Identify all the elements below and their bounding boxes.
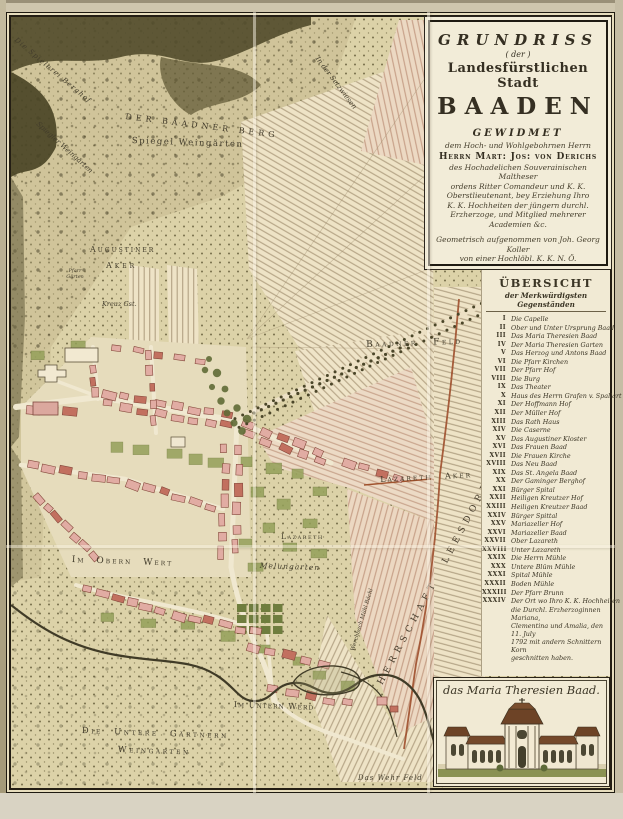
vignette-frame: das Maria Theresien Baad. [436,680,607,784]
legend-entry: XXDer Gaminger Berghof [482,477,610,486]
legend-entry-numeral: XVII [482,452,506,461]
legend-entry-text: Heiligen Kreutzer Baad [511,503,587,512]
legend-entry-numeral: VIII [482,375,506,384]
legend-entry-numeral: VII [482,366,506,375]
legend-entry-text: Die Burg [511,375,540,384]
legend-entry-text: Das Augustiner Kloster [511,435,586,444]
legend-entry: XVIDas Frauen Baad [482,443,610,452]
legend-entry: XXIIIHeiligen Kreutzer Baad [482,503,610,512]
legend-entry-text: Die Herrn Mühle [511,554,566,563]
legend-entry: XXXIIBoden Mühle [482,580,610,589]
vignette-caption: das Maria Theresien Baad. [437,683,606,697]
legend-entry-text: 1792 mit andern Schnittern Korn [511,638,610,654]
legend-subtitle: der Merkwürdigsten Gegenständen [486,291,606,312]
legend-entry: XXXISpital Mühle [482,571,610,580]
legend-entry: XHaus des Herrn Grafen v. Spallart [482,392,610,401]
legend-entry-text: Der Gaminger Berghof [511,477,585,486]
legend-entry-numeral: V [482,349,506,358]
map-label-kreuz-gst: Kreuz Gst. [102,300,137,308]
text-line: Erzherzoge, und Mitglied mehrerer [430,210,606,220]
legend-entry-numeral: XXIII [482,503,506,512]
legend-entry: IIIDas Maria Theresien Baad [482,332,610,341]
maria-theresien-baad-illustration [438,698,606,782]
legend-entry-text: Mariazeller Hof [511,520,562,529]
legend-entry-numeral: XXI [482,486,506,495]
legend-entry-text: Der Ort wo Ihro K. K. Hochheiten [511,597,620,606]
legend-entry: VIDie Pfarr Kirchen [482,358,610,367]
map-title-baaden: BAADEN [430,93,606,120]
legend-entry-numeral: XII [482,409,506,418]
legend-entry-numeral: XVI [482,443,506,452]
legend-entry-text: Der Pfarr Brunn [511,589,564,598]
legend-entry: XXVIMariazeller Baad [482,529,610,538]
legend-entry-numeral: XIII [482,418,506,427]
legend-entry-text: Die Caserne [511,426,551,435]
legend-entry-numeral: XX [482,477,506,486]
legend-entry-numeral: XXVII [482,537,506,546]
legend-entry-numeral: XXVI [482,529,506,538]
mill-building [377,697,387,705]
legend-entry: XIVDie Caserne [482,426,610,435]
legend-entry-numeral: XV [482,435,506,444]
legend-entry-numeral: IX [482,383,506,392]
legend-entry: XXIIHeiligen Kreutzer Hof [482,494,610,503]
legend-entry-numeral: XIX [482,469,506,478]
legend-entry-text: Der Hoffmann Hof [511,400,571,409]
legend-entry-text: Die Capelle [511,315,548,324]
legend-entry-text: Ober und Unter Ursprung Baad [511,324,614,333]
legend-entry-numeral: I [482,315,506,324]
legend-entry-text: Die Pfarr Kirchen [511,358,568,367]
text-line: ordens Ritter Comandeur und K. K. [430,182,606,192]
legend-entry: IIOber und Unter Ursprung Baad [482,324,610,333]
text-line: K. K. Hochheiten der jüngern durchl. [430,201,606,211]
legend-entry: XIDer Hoffmann Hof [482,400,610,409]
map-label-lazareth: Lazareth [281,532,324,541]
legend-entry-text: Bürger Spital [511,486,555,495]
legend-entry: XXIVBürger Spittal [482,512,610,521]
legend-entry-34: XXXIVDer Ort wo Ihro K. K. Hochheitendie… [482,597,610,662]
text-line: Oberstlieutenant, bey Erziehung Ihro [430,191,606,201]
legend-entry-text: Mariazeller Baad [511,529,567,538]
legend-entry-text: Das Rath Haus [511,418,560,427]
legend-entry-numeral: XXIX [482,554,506,563]
legend-entry-text: Heiligen Kreutzer Hof [511,494,583,503]
text-line: von einer Hochlöbl. K. K. N. Ö. Landesre… [430,254,606,266]
map-label-pfarr-garten: Pfarr Gärten [63,268,87,280]
legend-entry-numeral: XXII [482,494,506,503]
legend-entry-text: Das St. Angela Baad [511,469,577,478]
legend-entry-text: Clementina und Amalia, den 11. July [511,622,610,638]
legend-entry-numeral: XXVIII [482,546,506,555]
legend-entry-text: geschnitten haben. [511,654,610,662]
legend-entry: XIIDer Müller Hof [482,409,610,418]
legend-entry-text: Das Maria Theresien Baad [511,332,597,341]
legend-entry-numeral: XI [482,400,506,409]
legend-entry: XXIXDie Herrn Mühle [482,554,610,563]
legend-entry-numeral: VI [482,358,506,367]
dedicatee-name: Herrn Mart: Jos: von Derichs [430,152,606,162]
map-label-augustiner-aker: Aker [106,261,137,270]
legend-entry-numeral: X [482,392,506,401]
map-title-der: ( der ) [430,50,606,59]
map-sheet: Die Spielerei Berghof Der Baadner Berg S… [0,0,623,819]
legend-entry: XVDas Augustiner Kloster [482,435,610,444]
legend-entry: VIIIDie Burg [482,375,610,384]
burg-building [33,402,58,415]
legend-panel: ÜBERSICHT der Merkwürdigsten Gegenstände… [481,270,610,676]
page-left-edge [0,0,6,819]
legend-entry: VIIDer Pfarr Hof [482,366,610,375]
legend-entry-text: Die Frauen Kirche [511,452,571,461]
legend-entry: XXVIIIUnter Lazareth [482,546,610,555]
monastery-building [65,348,98,362]
legend-entry: XXVMariazeller Hof [482,520,610,529]
legend-entry-text: Bürger Spittal [511,512,557,521]
legend-entry: XXXIIIDer Pfarr Brunn [482,589,610,598]
cartouche-inner-frame: GRUNDRISS ( der ) Landesfürstlichen Stad… [428,20,608,266]
legend-entry-text: Das Herzog und Antons Baad [511,349,606,358]
legend-entry-text: Das Theater [511,383,551,392]
text-line: Academien &c. [430,220,606,230]
dedication-lines: des Hochadelichen Souverainischen Malthe… [430,163,606,230]
legend-entry-text: Unter Lazareth [511,546,561,555]
legend-entry: XXIBürger Spital [482,486,610,495]
legend-entry: XVIIIDas Neu Baad [482,460,610,469]
legend-entry-text: Der Maria Theresien Garten [511,341,603,350]
legend-entry: IDie Capelle [482,315,610,324]
legend-entry-text: Haus des Herrn Grafen v. Spallart [511,392,622,401]
dedication-intro: dem Hoch- und Wohlgebohrnen Herrn [430,141,606,151]
text-line: Geometrisch aufgenommen von Joh. Georg K… [430,235,606,254]
legend-entry-text: Der Müller Hof [511,409,560,418]
legend-entry-numeral: XXXI [482,571,506,580]
legend-entry: XXXUntere Blüm Mühle [482,563,610,572]
legend-entry-text: Ober Lazareth [511,537,558,546]
legend-title: ÜBERSICHT [482,276,610,290]
surveyor-lines: Geometrisch aufgenommen von Joh. Georg K… [430,235,606,266]
legend-entry-numeral: XIV [482,426,506,435]
legend-entry-text: Untere Blüm Mühle [511,563,575,572]
legend-entry: XVIIDie Frauen Kirche [482,452,610,461]
legend-entry: VDas Herzog und Antons Baad [482,349,610,358]
dedication-heading: GEWIDMET [430,128,606,139]
legend-entry-text: Boden Mühle [511,580,554,589]
legend-entry-text: Spital Mühle [511,571,553,580]
legend-entry-numeral: XXXIII [482,589,506,598]
legend-entry: IXDas Theater [482,383,610,392]
legend-entry-text: Das Frauen Baad [511,443,567,452]
legend-entry-text: Das Neu Baad [511,460,557,469]
legend-entry-numeral: XXXIV [482,597,506,606]
legend-entry-numeral: XXIV [482,512,506,521]
map-label-augustiner: Augustiner [90,245,155,254]
legend-entry-numeral: XVIII [482,460,506,469]
legend-entry: IVDer Maria Theresien Garten [482,341,610,350]
title-cartouche: GRUNDRISS ( der ) Landesfürstlichen Stad… [424,16,612,270]
map-title-stadt: Landesfürstlichen Stadt [430,61,606,91]
legend-entry-numeral: XXV [482,520,506,529]
legend-entry-numeral: III [482,332,506,341]
map-label-wehr-feld: Das Wehr Feld [358,774,423,782]
legend-entries: IDie CapelleIIOber und Unter Ursprung Ba… [482,315,610,597]
legend-entry: XXXIVDer Ort wo Ihro K. K. Hochheiten [482,597,610,606]
page-bottom-margin [0,793,623,819]
vignette-panel: das Maria Theresien Baad. [433,677,610,787]
legend-entry-text: die Durchl. Erzherzoginnen Mariana, [511,606,610,622]
legend-entry: XIXDas St. Angela Baad [482,469,610,478]
legend-entry-numeral: II [482,324,506,333]
text-line: des Hochadelichen Souverainischen Malthe… [430,163,606,182]
legend-entry: XIIIDas Rath Haus [482,418,610,427]
legend-entry: XXVIIOber Lazareth [482,537,610,546]
legend-entry-numeral: XXXII [482,580,506,589]
legend-entry-text: Der Pfarr Hof [511,366,555,375]
legend-entry-numeral: IV [482,341,506,350]
map-title: GRUNDRISS [430,31,606,49]
legend-entry-numeral: XXX [482,563,506,572]
